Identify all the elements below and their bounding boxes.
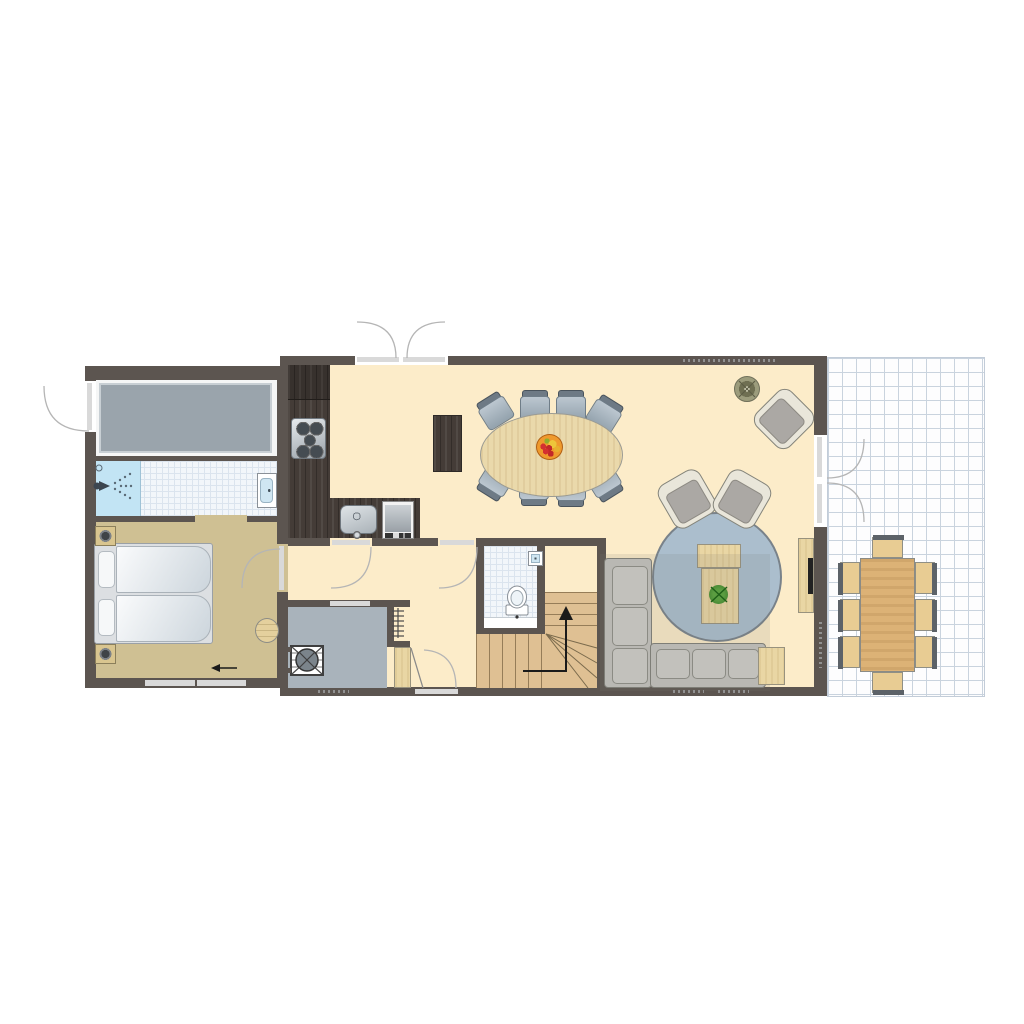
storage-door-arc: [44, 386, 89, 431]
stair-arrow-head: [559, 606, 573, 620]
coffee-plant-leaves-icon: [711, 587, 727, 602]
toilet: [506, 586, 528, 619]
stair-arrow: [523, 618, 566, 671]
closet-door-arc: [424, 650, 456, 688]
kitchen-hall-door-arc: [331, 547, 371, 588]
plant-leaves-icon: [739, 381, 755, 397]
bedroom-arrow-head: [211, 664, 220, 672]
bedroom-door-arc: [242, 549, 280, 588]
dining-hall-door-arc: [439, 547, 477, 588]
closet-door-leaf: [411, 648, 423, 688]
plan-annotations: [0, 0, 1024, 1024]
ventilation-fan-icon: [292, 647, 322, 674]
entrance-door-arc: [407, 322, 445, 358]
terrace-door-arc: [827, 483, 864, 522]
radiator: [392, 608, 404, 638]
entrance-door-arc: [357, 322, 396, 358]
stair-winder-lines: [546, 634, 597, 688]
floor-plan: [0, 0, 1024, 1024]
terrace-door-arc: [827, 439, 864, 478]
shower-head-icon: [94, 465, 133, 499]
